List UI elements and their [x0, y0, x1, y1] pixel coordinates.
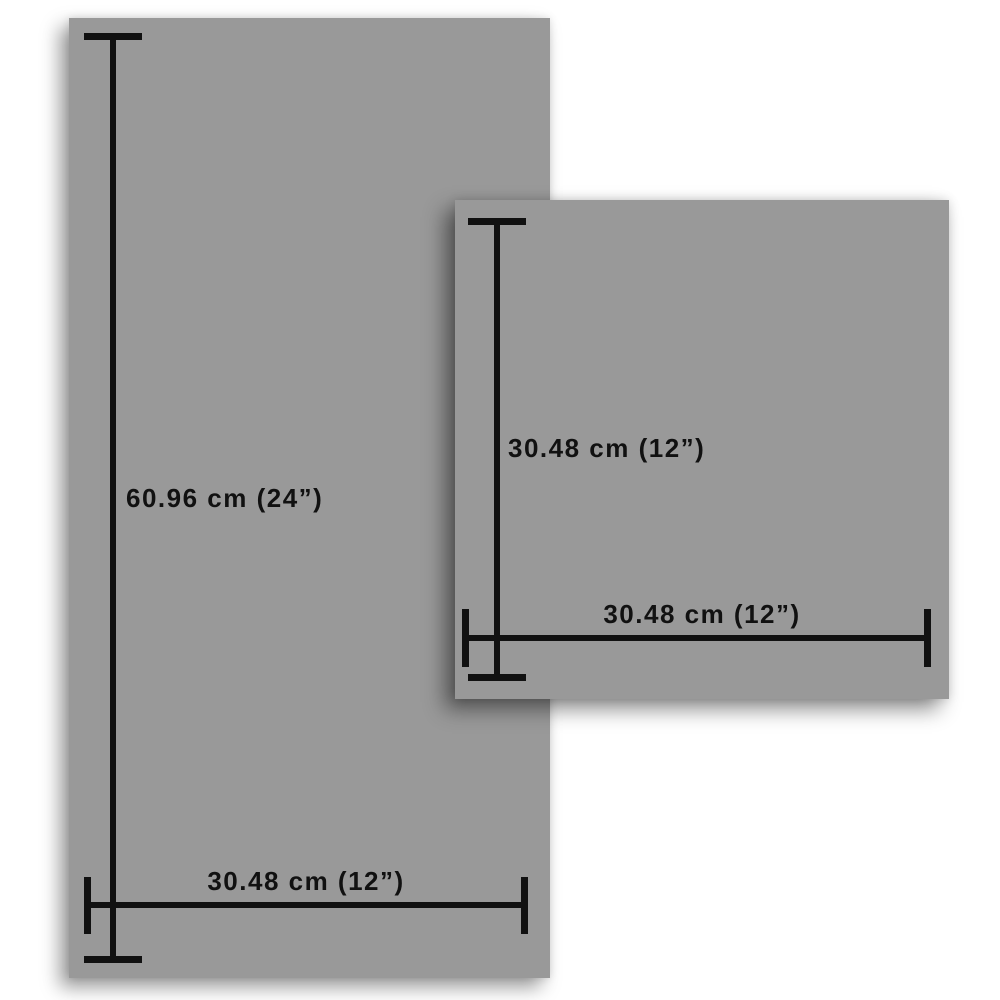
small-panel-width-dimension-line — [464, 635, 931, 641]
small-panel-width-dimension-cap-right — [924, 609, 931, 667]
big-panel-width-dimension-line — [86, 902, 526, 908]
big-panel-height-label: 60.96 cm (24”) — [126, 483, 323, 513]
big-panel-width-dimension-cap-left — [84, 877, 91, 934]
small-panel-height-label: 30.48 cm (12”) — [508, 433, 705, 463]
big-panel-height-dimension-line — [110, 36, 116, 962]
small-panel-width-dimension-cap-left — [462, 609, 469, 667]
small-panel-height-dimension-cap-top — [468, 218, 526, 225]
big-panel-width-dimension-cap-right — [521, 877, 528, 934]
small-panel-width-label: 30.48 cm (12”) — [603, 599, 800, 629]
big-panel-height-dimension-cap-bottom — [84, 956, 142, 963]
small-panel-height-dimension-cap-bottom — [468, 674, 526, 681]
big-panel-height-dimension-cap-top — [84, 33, 142, 40]
big-panel-width-label: 30.48 cm (12”) — [207, 866, 404, 896]
small-panel-height-dimension-line — [494, 220, 500, 680]
panel-size-comparison-diagram: 60.96 cm (24”) 30.48 cm (12”) 30.48 cm (… — [0, 0, 1000, 1000]
